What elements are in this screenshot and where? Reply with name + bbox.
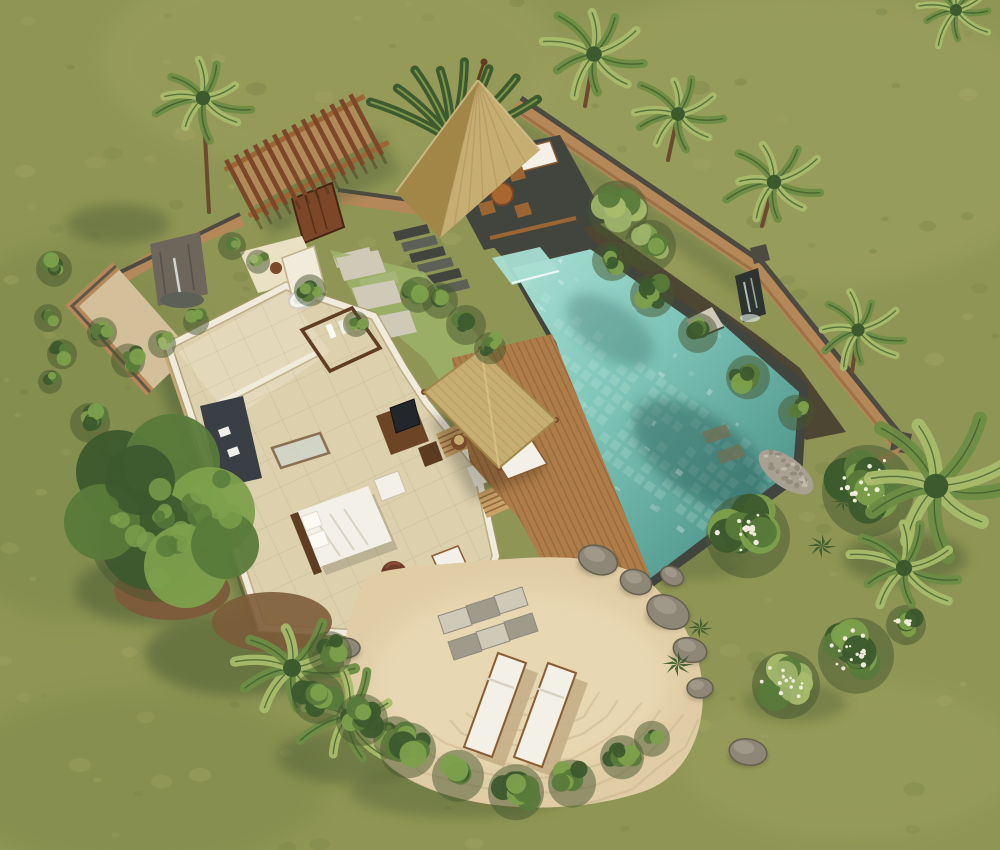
grass-speckle	[14, 413, 21, 417]
grass-speckle	[735, 78, 747, 85]
grass-speckle	[720, 644, 741, 657]
grass-speckle	[61, 449, 72, 456]
palm-crown-center	[950, 4, 962, 16]
sand-edge-bush	[308, 631, 352, 675]
leaf-tuft	[197, 548, 208, 559]
flower-dot	[830, 643, 834, 647]
grass-speckle	[992, 334, 999, 339]
flower-dot	[861, 634, 865, 638]
roof-finial-knob	[481, 59, 488, 66]
sand-edge-bush	[634, 721, 670, 757]
grass-speckle	[829, 572, 837, 577]
grass-speckle	[124, 386, 131, 391]
flower-dot	[747, 520, 751, 524]
grass-speckle	[163, 13, 172, 19]
grass-speckle	[869, 249, 877, 254]
grass-speckle	[93, 777, 101, 782]
leaf-tuft	[110, 515, 120, 525]
grass-speckle	[906, 825, 920, 834]
leaf-tuft	[212, 470, 230, 488]
pebble	[781, 459, 785, 463]
grass-speckle	[389, 44, 397, 49]
grass-speckle	[246, 82, 267, 95]
sand-edge-bush	[548, 760, 596, 808]
flower-dot	[760, 680, 764, 684]
leaf-tuft	[125, 525, 147, 547]
flower-dot	[789, 685, 793, 689]
pebble	[794, 465, 800, 471]
grass-speckle	[15, 165, 35, 178]
palm-crown-center	[671, 107, 685, 121]
foliage-clump	[638, 224, 652, 238]
grass-speckle	[86, 156, 106, 168]
flower-dot	[850, 658, 853, 661]
palm-crown-center	[896, 560, 912, 576]
grass-speckle	[465, 838, 483, 849]
foliage-clump	[607, 257, 618, 268]
planter-shrub	[726, 355, 770, 399]
flower-dot	[753, 540, 758, 545]
fountain-basin	[160, 292, 204, 308]
foliage-clump	[490, 341, 499, 350]
waterfall-splash	[740, 314, 760, 322]
courtyard-plant	[218, 232, 246, 260]
courtyard-plant	[87, 317, 117, 347]
grass-speckle	[961, 212, 974, 220]
grass-speckle	[151, 775, 172, 788]
grass-speckle	[4, 275, 19, 284]
grass-speckle	[781, 275, 795, 284]
flower-dot	[784, 679, 788, 683]
flower-dot	[791, 679, 795, 683]
flower-dot	[789, 677, 792, 680]
courtyard-plant	[148, 330, 176, 358]
foliage-clump	[129, 349, 145, 365]
grass-speckle	[228, 184, 236, 189]
sand-edge-bush	[336, 694, 388, 746]
foliage-clump	[158, 337, 167, 346]
grass-speckle	[67, 65, 75, 70]
flower-dot	[778, 681, 782, 685]
grass-speckle	[971, 283, 988, 293]
grass-speckle	[1, 543, 19, 554]
grass-speckle	[925, 353, 945, 365]
flower-dot	[782, 675, 785, 678]
grass-speckle	[144, 156, 156, 164]
foliage-clump	[90, 324, 102, 336]
foliage-clump	[193, 309, 203, 319]
flowering-shrub	[818, 618, 894, 694]
grass-speckle	[358, 237, 376, 248]
flower-dot	[781, 669, 785, 673]
leaf-tuft	[187, 503, 212, 528]
grass-speckle	[959, 89, 978, 101]
grass-speckle	[21, 16, 36, 26]
grass-speckle	[816, 524, 832, 534]
grass-speckle	[441, 233, 461, 245]
grass-speckle	[16, 693, 31, 703]
foliage-clump	[329, 634, 343, 648]
grass-speckle	[406, 2, 413, 6]
leaf-tuft	[149, 478, 172, 501]
sand-edge-bush	[432, 750, 484, 802]
foliage-clump	[250, 254, 259, 263]
planter-shrub	[678, 313, 718, 353]
grass-speckle	[962, 313, 973, 320]
gazebo-side-shrub	[624, 220, 676, 272]
pebble	[776, 469, 780, 473]
flowering-shrub	[752, 651, 820, 719]
pebble	[799, 478, 806, 482]
west-shrub	[38, 370, 62, 394]
boulder-highlight	[690, 680, 704, 690]
grass-speckle	[876, 8, 888, 15]
palm-crown-center	[283, 659, 301, 677]
courtyard-plant	[183, 308, 209, 335]
courtyard-plant	[246, 250, 270, 274]
grass-speckle	[807, 243, 815, 248]
palm-crown-center	[767, 175, 781, 189]
flower-dot	[801, 682, 804, 685]
pebble	[790, 472, 797, 476]
foliage-clump	[349, 318, 358, 327]
frangipani-tree	[706, 494, 790, 578]
planter-shrub	[630, 273, 674, 317]
foliage-clump	[740, 367, 754, 381]
grass-speckle	[230, 702, 240, 708]
flower-dot	[864, 487, 868, 491]
foliage-clump	[552, 773, 570, 791]
foliage-clump	[613, 745, 626, 758]
pebble	[785, 464, 790, 468]
flower-dot	[861, 662, 866, 667]
foliage-clump	[300, 283, 311, 294]
grass-speckle	[111, 832, 120, 838]
pebble	[775, 452, 783, 455]
west-shrub	[34, 304, 62, 332]
foliage-clump	[357, 319, 368, 330]
grass-speckle	[162, 59, 170, 64]
straw-hat	[454, 435, 464, 445]
flower-dot	[840, 487, 843, 490]
grass-speckle	[19, 389, 29, 395]
flower-dot	[768, 666, 772, 670]
grass-speckle	[41, 693, 48, 697]
grass-speckle	[791, 289, 807, 299]
flower-dot	[753, 532, 757, 536]
grass-speckle	[354, 16, 362, 21]
pebble	[799, 472, 803, 476]
grass-speckle	[27, 204, 36, 210]
grass-speckle	[964, 31, 973, 37]
grass-speckle	[169, 200, 184, 209]
flower-dot	[737, 519, 741, 523]
flower-dot	[851, 628, 855, 632]
foliage-clump	[310, 684, 327, 701]
foliage-clump	[506, 774, 526, 794]
foliage-clump	[650, 730, 664, 744]
grass-speckle	[49, 224, 63, 233]
foliage-clump	[101, 325, 114, 338]
foliage-clump	[598, 185, 620, 207]
foliage-clump	[771, 661, 798, 688]
flower-dot	[843, 636, 848, 641]
pebble	[802, 484, 808, 488]
grass-speckle	[35, 489, 47, 496]
grass-speckle	[422, 13, 435, 21]
grass-speckle	[134, 791, 143, 797]
foliage-clump	[57, 351, 72, 366]
scene-canvas	[0, 0, 1000, 850]
grass-speckle	[103, 147, 123, 159]
flower-dot	[859, 480, 863, 484]
foliage-clump	[48, 372, 56, 380]
aerial-villa-render	[0, 0, 1000, 850]
leaf-tuft	[97, 496, 119, 518]
foliage-clump	[642, 283, 655, 296]
grass-speckle	[760, 734, 768, 739]
grass-speckle	[69, 758, 91, 772]
leaf-tuft	[190, 480, 214, 504]
flower-dot	[852, 491, 857, 496]
flower-dot	[838, 649, 841, 652]
west-shrub	[47, 339, 77, 369]
flowering-shrub	[886, 605, 926, 645]
grass-speckle	[903, 782, 925, 796]
pebble	[763, 454, 768, 458]
foliage-clump	[83, 417, 98, 432]
foliage-clump	[458, 313, 475, 330]
grass-speckle	[728, 696, 735, 701]
palm-crown-center	[851, 323, 864, 336]
grass-speckle	[936, 695, 952, 705]
pebble	[791, 462, 795, 466]
flower-dot	[841, 666, 845, 670]
grass-speckle	[799, 512, 815, 522]
palm-shadow	[66, 204, 170, 244]
grass-speckle	[29, 577, 36, 581]
pebble	[781, 476, 789, 481]
step-side-plant	[400, 277, 436, 313]
flower-dot	[894, 620, 896, 622]
flower-dot	[799, 686, 803, 690]
grass-speckle	[617, 146, 628, 153]
flower-dot	[867, 493, 870, 496]
flower-dot	[860, 651, 862, 653]
grass-speckle	[242, 286, 250, 291]
flower-dot	[859, 653, 864, 658]
grass-speckle	[4, 378, 10, 382]
grass-speckle	[959, 682, 967, 687]
pebble	[768, 466, 775, 471]
grass-speckle	[892, 83, 901, 88]
flower-dot	[875, 487, 880, 492]
flower-dot	[739, 549, 742, 552]
leaf-tuft	[148, 567, 169, 588]
foliage-clump	[411, 285, 429, 303]
foliage-clump	[688, 322, 703, 337]
flower-dot	[750, 527, 755, 532]
grass-speckle	[233, 272, 249, 282]
flower-dot	[895, 618, 900, 623]
leaf-tuft	[172, 521, 191, 540]
flower-dot	[845, 485, 850, 490]
sand-edge-bush	[488, 764, 544, 820]
palm-crown-center	[924, 474, 949, 499]
west-shrub	[36, 251, 72, 287]
palm-crown-center	[196, 91, 210, 105]
flower-dot	[757, 514, 760, 517]
grass-speckle	[189, 768, 211, 782]
grass-speckle	[881, 216, 888, 221]
flower-dot	[715, 530, 720, 535]
grass-speckle	[620, 825, 630, 832]
grass-speckle	[122, 647, 138, 657]
pebble	[781, 467, 787, 470]
flower-dot	[845, 645, 848, 648]
patio-table	[270, 262, 282, 274]
flower-dot	[867, 464, 872, 469]
leaf-tuft	[156, 535, 178, 557]
foliage-clump	[43, 252, 59, 268]
foliage-clump	[231, 240, 239, 248]
flower-dot	[797, 694, 801, 698]
flower-dot	[883, 459, 886, 462]
grass-speckle	[44, 331, 57, 339]
pebble	[794, 483, 799, 489]
pebble	[769, 449, 773, 455]
step-side-plant	[294, 274, 326, 306]
grass-speckle	[314, 91, 333, 103]
flower-dot	[849, 645, 851, 647]
palm-crown-center	[586, 46, 602, 62]
grass-speckle	[776, 116, 789, 124]
grass-speckle	[137, 712, 155, 723]
grass-speckle	[765, 598, 772, 602]
foliage-clump	[400, 741, 427, 768]
flower-dot	[779, 691, 783, 695]
step-side-plant	[343, 311, 369, 337]
grass-speckle	[693, 159, 712, 171]
flower-dot	[739, 533, 742, 536]
flower-dot	[907, 622, 912, 627]
leaf-tuft	[176, 539, 189, 552]
foliage-clump	[355, 704, 371, 720]
flower-dot	[747, 526, 751, 530]
foliage-clump	[570, 761, 587, 778]
foliage-clump	[445, 758, 469, 782]
foliage-clump	[798, 401, 809, 412]
flower-dot	[856, 653, 859, 656]
grass-speckle	[919, 221, 936, 232]
planter-shrub	[778, 395, 814, 431]
foliage-clump	[648, 238, 664, 254]
flower-dot	[843, 476, 847, 480]
flower-dot	[836, 663, 839, 666]
foliage-clump	[48, 315, 59, 326]
grass-speckle	[591, 103, 599, 108]
leaf-tuft	[154, 510, 166, 522]
